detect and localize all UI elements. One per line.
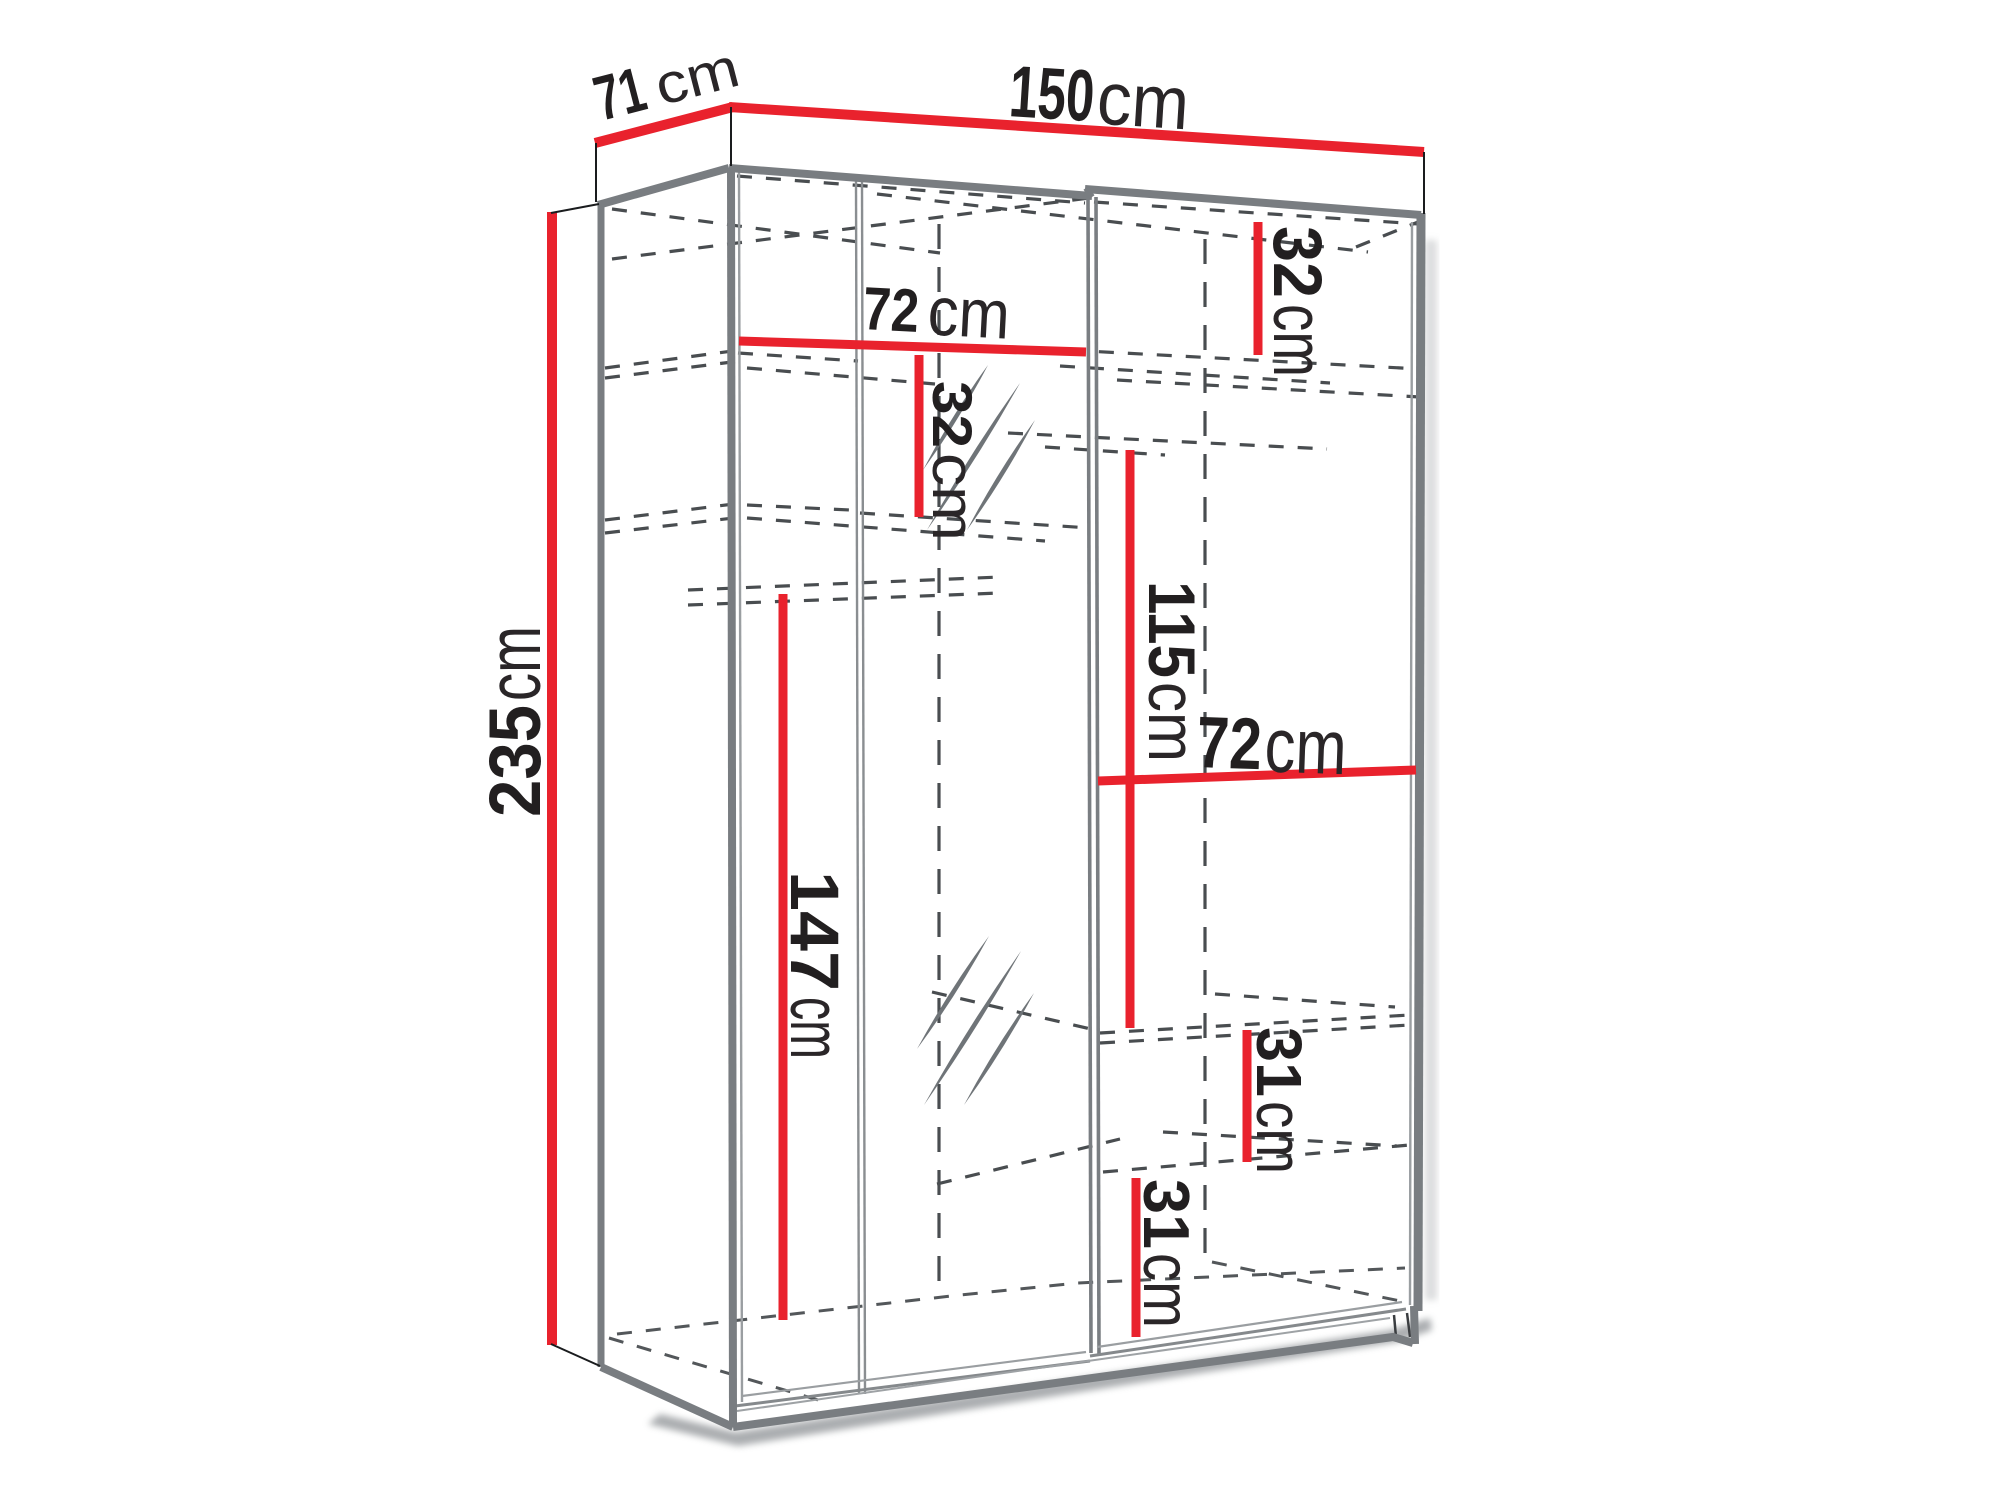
svg-text:cm: cm <box>472 626 556 701</box>
svg-text:31: 31 <box>1243 1027 1315 1097</box>
svg-text:147: 147 <box>776 871 853 991</box>
svg-text:235: 235 <box>475 705 556 817</box>
svg-text:32: 32 <box>1259 226 1336 298</box>
svg-text:32: 32 <box>921 381 984 448</box>
svg-text:115: 115 <box>1135 581 1209 678</box>
svg-text:cm: cm <box>1243 1101 1317 1174</box>
svg-text:cm: cm <box>1129 1253 1204 1328</box>
svg-text:cm: cm <box>1258 304 1337 377</box>
svg-text:72: 72 <box>861 274 920 345</box>
svg-text:cm: cm <box>1095 56 1192 146</box>
svg-text:cm: cm <box>920 453 987 541</box>
svg-text:72: 72 <box>1195 702 1263 785</box>
svg-text:cm: cm <box>775 997 854 1059</box>
svg-text:cm: cm <box>926 272 1012 353</box>
svg-text:cm: cm <box>1263 702 1348 791</box>
svg-text:31: 31 <box>1130 1179 1203 1249</box>
svg-text:150: 150 <box>1007 51 1097 137</box>
